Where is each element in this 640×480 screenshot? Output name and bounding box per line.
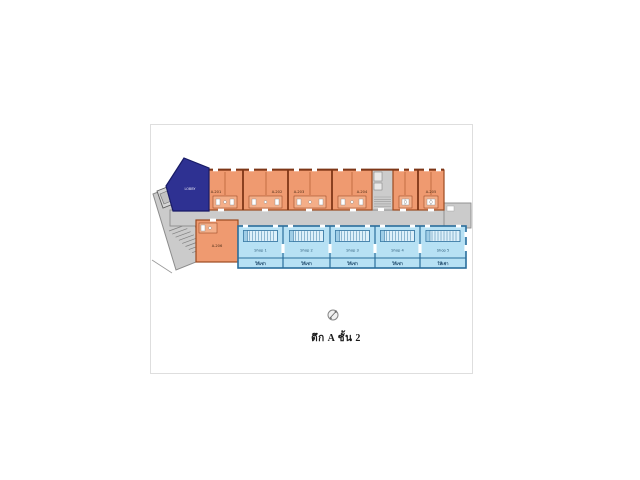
door-tick (288, 225, 293, 228)
bath-fixture (252, 199, 256, 205)
bath-fixture (351, 201, 354, 204)
door-tick (410, 225, 415, 228)
stair-landing (381, 231, 385, 242)
lobby-unit: LOBBY (166, 158, 209, 211)
stair-landing (290, 231, 294, 242)
door-tick (320, 225, 325, 228)
bath-fixture (319, 199, 323, 205)
window-tick (436, 169, 441, 172)
shop-sublabel: ให้เช่า (301, 260, 312, 266)
shop-label: Shop 3 (346, 249, 358, 253)
door-tick (243, 225, 248, 228)
bath-fixture (216, 199, 220, 205)
shop-label: Shop 4 (391, 249, 404, 253)
window-tick (231, 169, 236, 172)
bath-fixture (430, 201, 433, 204)
door-tick (464, 245, 467, 251)
bath-fixture (275, 199, 279, 205)
bath-fixture (224, 201, 227, 204)
shop-sublabel: ให้เช่า (392, 260, 403, 266)
window-tick (356, 169, 361, 172)
window-tick (267, 169, 272, 172)
door-tick (380, 225, 385, 228)
window-tick (409, 169, 414, 172)
rooms-strip: A-201 A-202 A-203 A-204 A-205 (206, 169, 444, 212)
door-tick (400, 209, 406, 212)
room-number: A-203 (294, 190, 305, 194)
shop-sublabel: ให้เช่า (255, 260, 266, 266)
core-shaft (374, 183, 382, 190)
door-tick (328, 244, 331, 253)
door-tick (335, 225, 340, 228)
shop-label: Shop 2 (300, 249, 312, 253)
shop-stair (336, 231, 370, 242)
core-elevator (374, 172, 382, 181)
bath-fixture (404, 201, 407, 204)
window-tick (424, 169, 429, 172)
door-tick (281, 244, 284, 253)
door-tick (418, 244, 421, 253)
floor-plan: A-201 A-202 A-203 A-204 A-205 A-206 Shop… (0, 0, 640, 480)
door-tick (273, 225, 278, 228)
stair-landing (244, 231, 248, 242)
stair-core (372, 170, 393, 211)
door-tick (365, 225, 370, 228)
page: A-201 A-202 A-203 A-204 A-205 A-206 Shop… (0, 0, 640, 480)
room-number: A-201 (211, 190, 222, 194)
stair-landing (426, 231, 430, 242)
door-tick (464, 232, 467, 237)
bath-fixture (341, 199, 345, 205)
door-tick (456, 225, 461, 228)
room-number: A-205 (426, 190, 437, 194)
plan-caption: ตึก A ชั้น 2 (150, 331, 522, 346)
bath-fixture (359, 199, 363, 205)
bath-fixture (209, 227, 212, 230)
window-tick (338, 169, 343, 172)
room-number: A-204 (357, 190, 368, 194)
bath-fixture (297, 199, 301, 205)
shop-sublabel: ให้เช่า (438, 260, 449, 266)
window-tick (249, 169, 254, 172)
shop-stair (290, 231, 324, 242)
shop-label: Shop 5 (437, 249, 449, 253)
door-tick (210, 219, 216, 222)
shop-stair (426, 231, 460, 242)
door-tick (428, 209, 434, 212)
stair-landing (336, 231, 340, 242)
window-tick (294, 169, 299, 172)
door-tick (306, 209, 312, 212)
lobby-label: LOBBY (185, 187, 197, 191)
shop-stair (381, 231, 415, 242)
door-tick (350, 209, 356, 212)
shop-stair (244, 231, 278, 242)
lobby-outline (166, 158, 209, 211)
door-tick (262, 209, 268, 212)
door-tick (373, 244, 376, 253)
window-tick (399, 169, 404, 172)
bath-fixture (230, 199, 234, 205)
shop-sublabel: ให้เช่า (347, 260, 358, 266)
compass-north-icon (328, 310, 338, 320)
door-tick (425, 225, 430, 228)
window-tick (312, 169, 317, 172)
door-tick (218, 209, 224, 212)
wing-ramp-line (152, 260, 172, 273)
shop-label: Shop 1 (254, 249, 266, 253)
bath-fixture (309, 201, 312, 204)
bath-fixture (201, 225, 205, 231)
bath-fixture (264, 201, 267, 204)
room-number: A-206 (212, 244, 223, 248)
room-number: A-202 (272, 190, 283, 194)
shops-strip: Shop 1ให้เช่าShop 2ให้เช่าShop 3ให้เช่าS… (238, 225, 467, 268)
east-service-box (447, 206, 454, 211)
core-door-tick (378, 208, 384, 211)
lower-west-room: A-206 (196, 219, 238, 262)
window-tick (213, 169, 218, 172)
